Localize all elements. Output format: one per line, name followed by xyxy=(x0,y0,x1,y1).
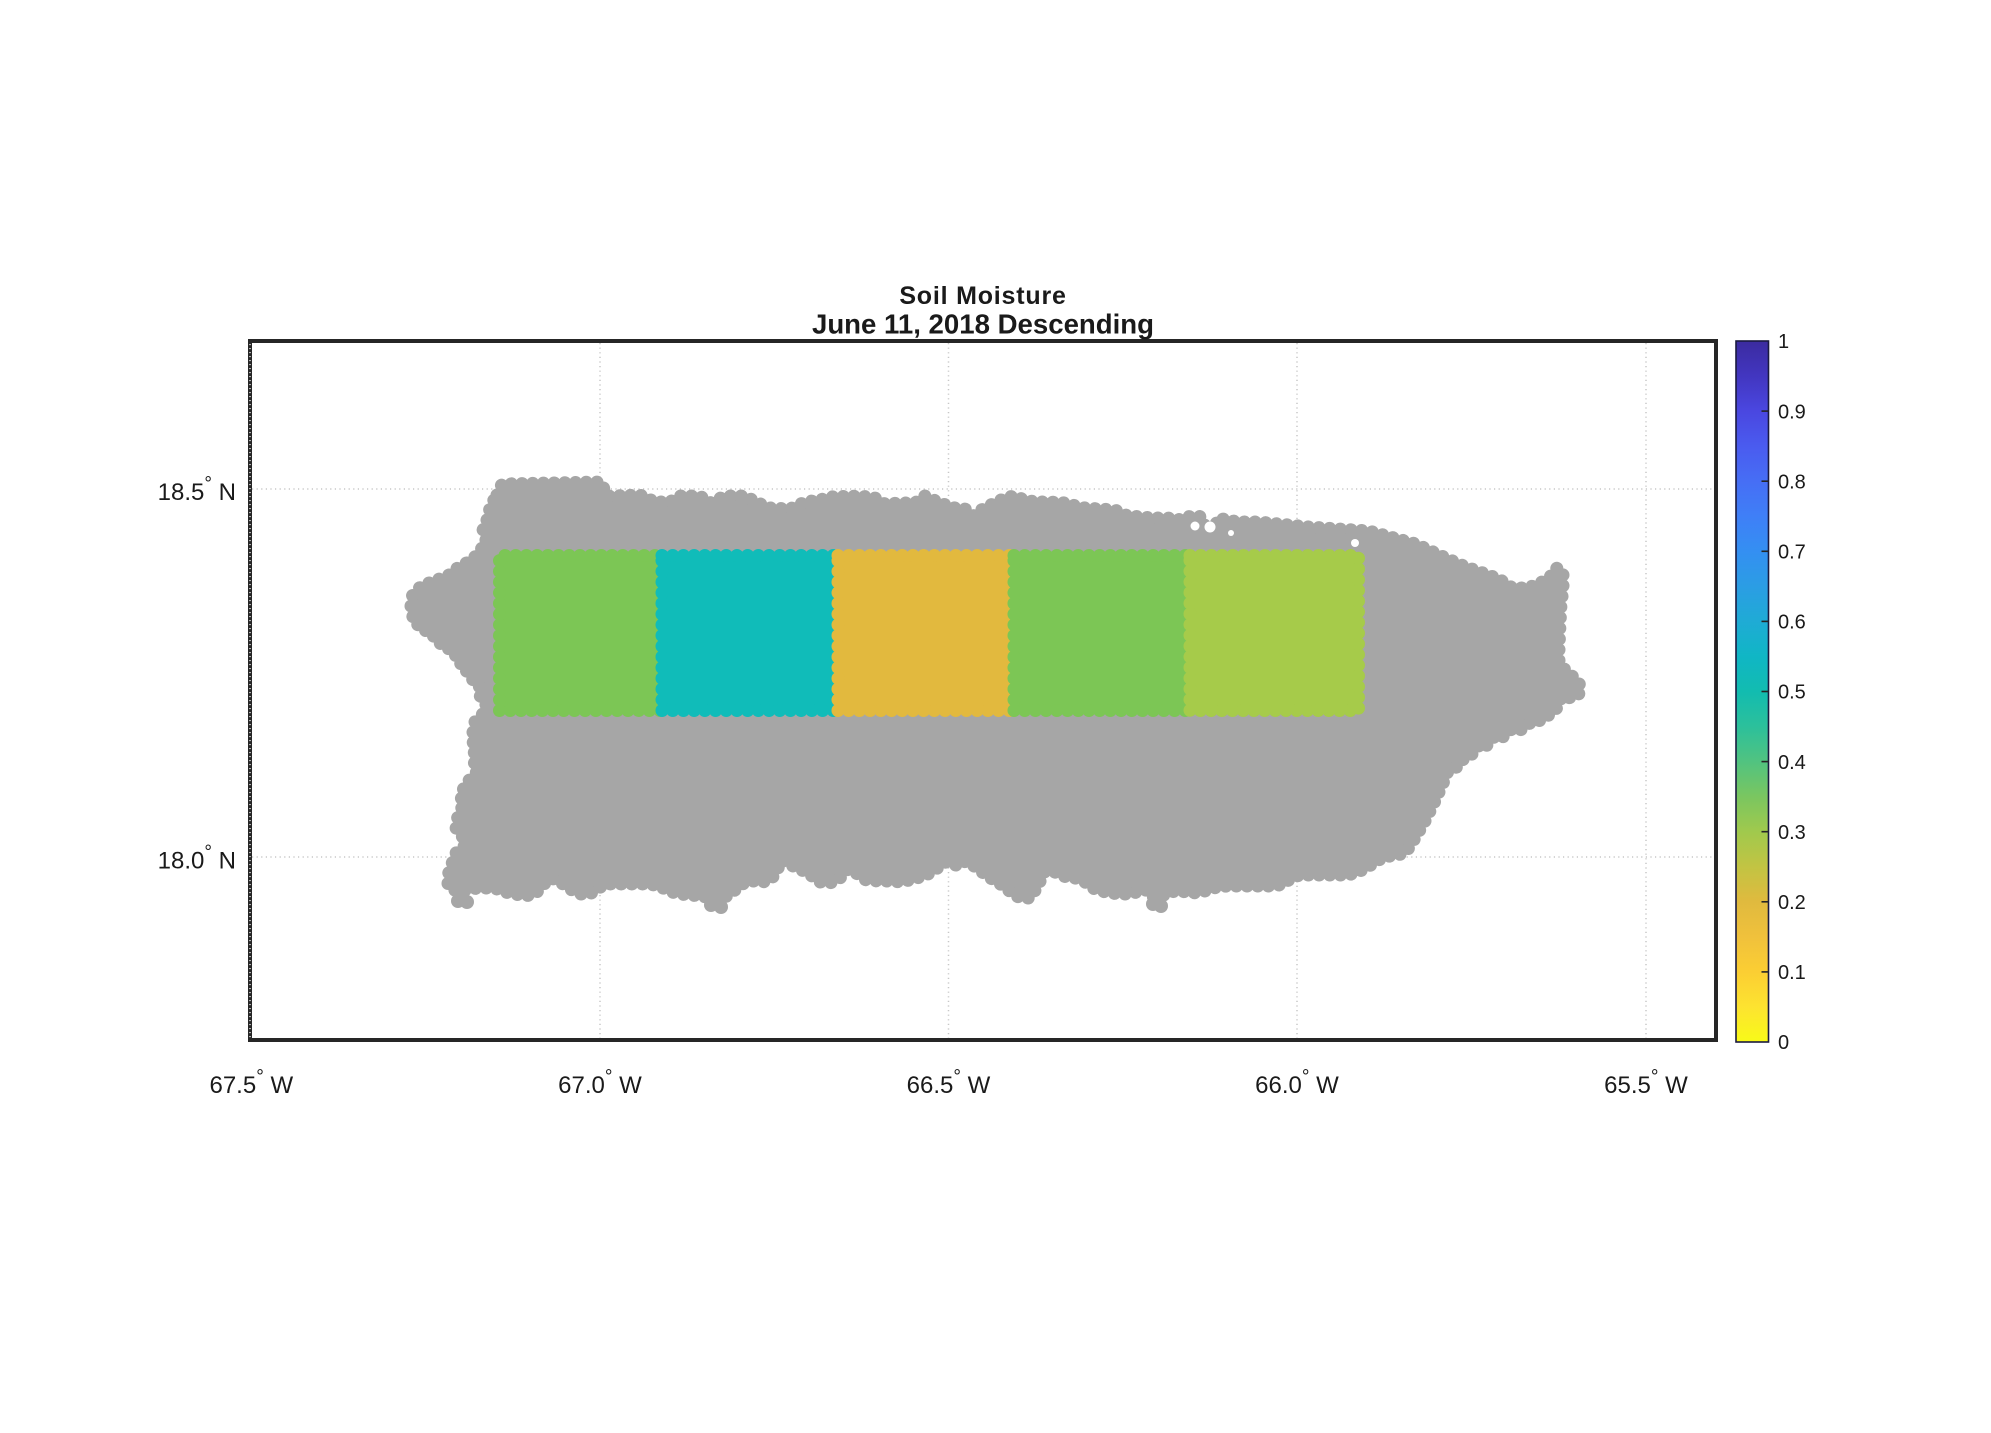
svg-text:0.3: 0.3 xyxy=(1778,822,1806,844)
svg-text:0.7: 0.7 xyxy=(1778,542,1806,564)
svg-text:67.0° W: 67.0° W xyxy=(558,1067,642,1100)
svg-text:June 11, 2018 Descending: June 11, 2018 Descending xyxy=(812,309,1154,340)
svg-text:66.0° W: 66.0° W xyxy=(1255,1067,1339,1100)
svg-text:0.4: 0.4 xyxy=(1778,752,1806,774)
svg-text:0: 0 xyxy=(1778,1032,1789,1054)
svg-text:0.6: 0.6 xyxy=(1778,612,1806,634)
svg-text:18.0° N: 18.0° N xyxy=(158,842,236,875)
svg-text:67.5° W: 67.5° W xyxy=(209,1067,293,1100)
svg-text:18.5° N: 18.5° N xyxy=(158,474,236,507)
svg-text:66.5° W: 66.5° W xyxy=(907,1067,991,1100)
svg-text:65.5° W: 65.5° W xyxy=(1604,1067,1688,1100)
svg-text:0.1: 0.1 xyxy=(1778,962,1806,984)
svg-text:0.8: 0.8 xyxy=(1778,471,1806,493)
svg-text:Soil Moisture: Soil Moisture xyxy=(899,282,1066,310)
svg-text:0.2: 0.2 xyxy=(1778,892,1806,914)
svg-text:0.5: 0.5 xyxy=(1778,682,1806,704)
svg-text:1: 1 xyxy=(1778,331,1789,353)
svg-text:0.9: 0.9 xyxy=(1778,401,1806,423)
